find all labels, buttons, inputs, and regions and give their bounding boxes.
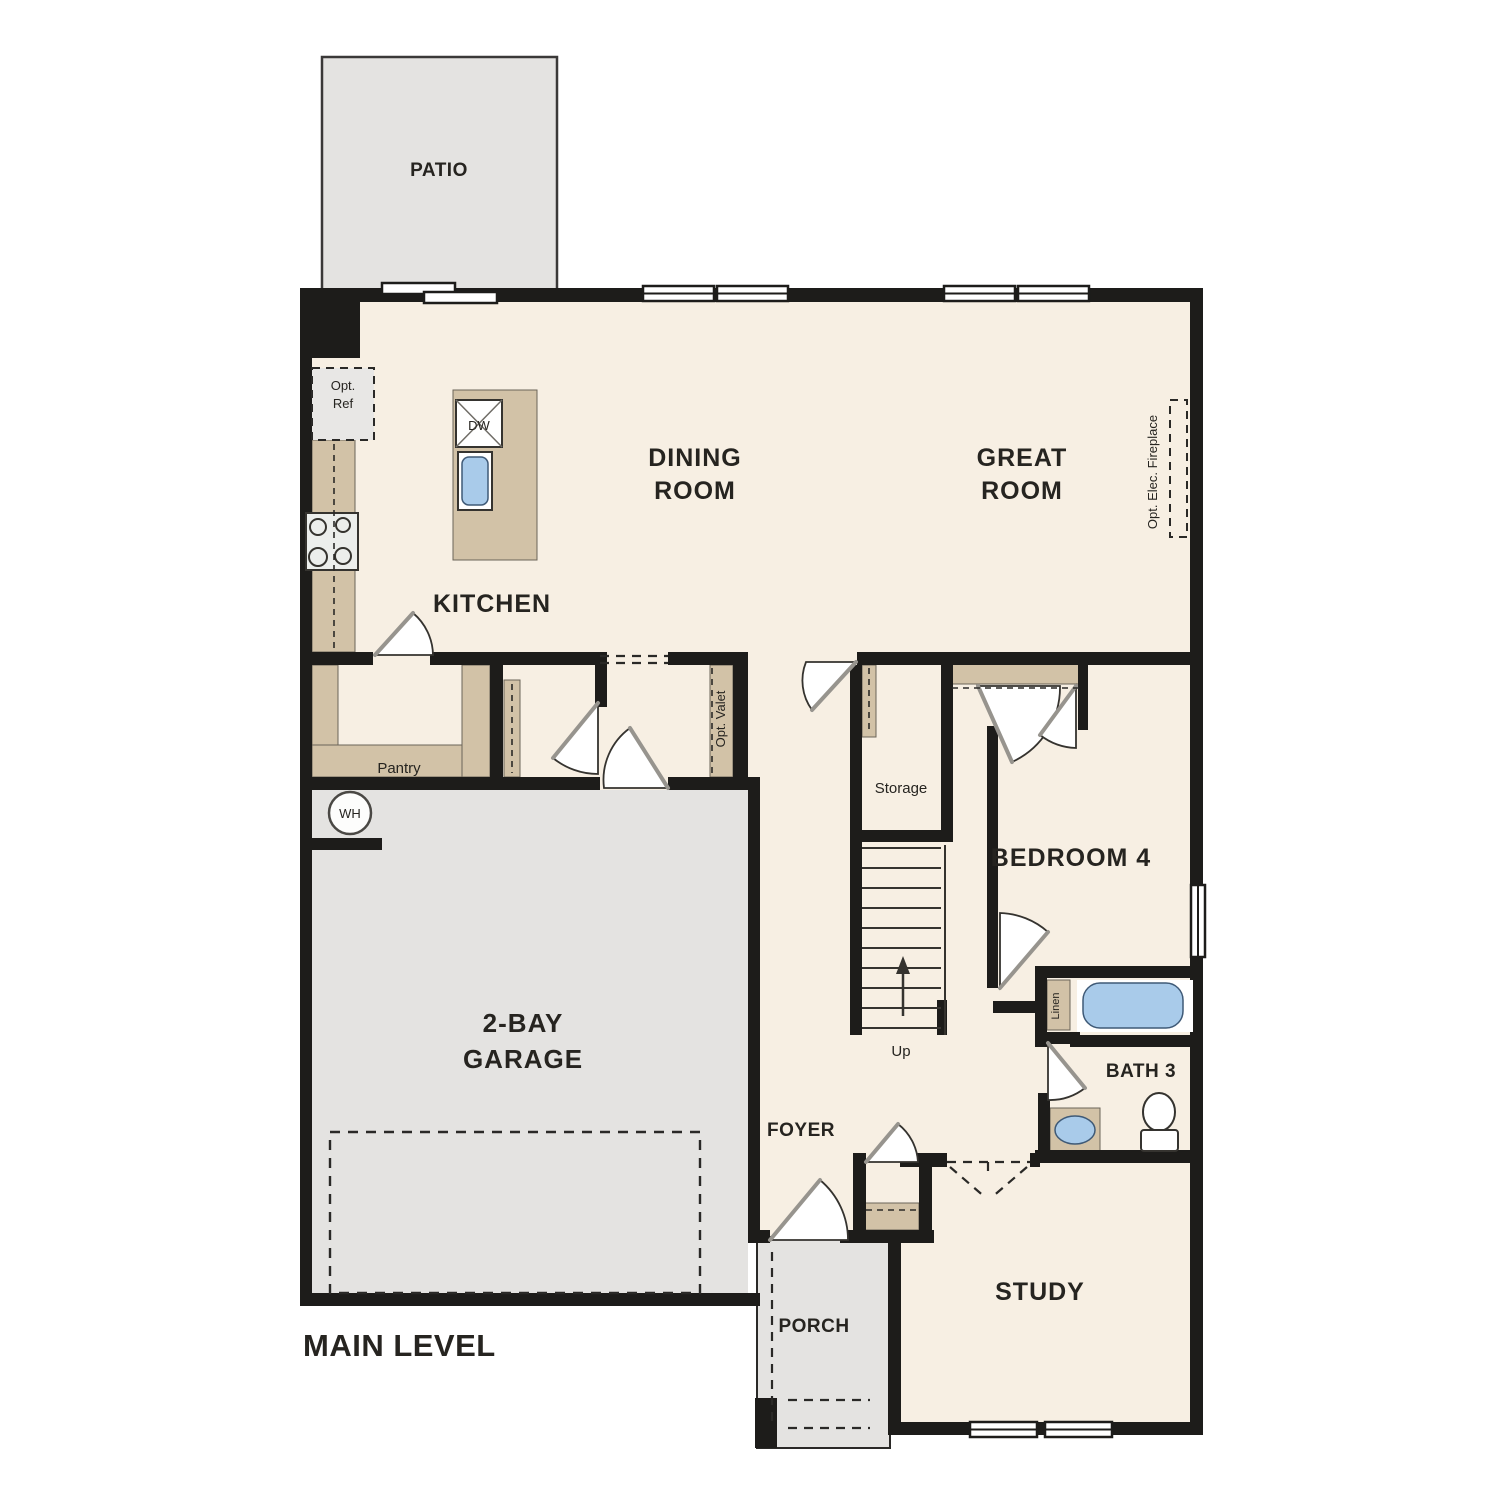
kitchen-label: KITCHEN bbox=[433, 590, 551, 618]
study-label: STUDY bbox=[995, 1278, 1085, 1306]
bath3-label: BATH 3 bbox=[1106, 1061, 1176, 1082]
toilet-tank bbox=[1141, 1130, 1178, 1151]
foyer-label: FOYER bbox=[767, 1120, 835, 1141]
floor-plan-page: PATIO DINING ROOM GREAT ROOM KITCHEN BED… bbox=[0, 0, 1500, 1500]
floor-plan-canvas: PATIO DINING ROOM GREAT ROOM KITCHEN BED… bbox=[0, 0, 1500, 1500]
plan-title: MAIN LEVEL bbox=[303, 1328, 496, 1363]
dining-room-label-2: ROOM bbox=[654, 477, 736, 505]
bathtub bbox=[1083, 983, 1183, 1028]
opt-fireplace-label: Opt. Elec. Fireplace bbox=[1145, 415, 1160, 529]
entry-closet-shelf bbox=[864, 1203, 919, 1230]
bedroom4-label: BEDROOM 4 bbox=[991, 844, 1151, 872]
great-room-label-2: ROOM bbox=[981, 477, 1063, 505]
dining-room-label-1: DINING bbox=[648, 444, 742, 472]
linen-label: Linen bbox=[1050, 993, 1062, 1020]
storage-label: Storage bbox=[875, 780, 928, 797]
opt-ref-label-2: Ref bbox=[333, 396, 354, 411]
patio-label: PATIO bbox=[410, 160, 468, 181]
great-room-label-1: GREAT bbox=[977, 444, 1068, 472]
toilet-bowl bbox=[1143, 1093, 1175, 1131]
pantry-shelf-right bbox=[462, 665, 490, 777]
up-label: Up bbox=[891, 1043, 910, 1060]
patio-slider-panel-2 bbox=[424, 292, 497, 303]
opt-valet-label: Opt. Valet bbox=[713, 690, 728, 747]
pantry-label: Pantry bbox=[377, 760, 421, 777]
bedroom4-closet-shelf bbox=[950, 662, 1082, 684]
garage-label-2: GARAGE bbox=[463, 1044, 583, 1074]
water-heater-label: WH bbox=[339, 806, 361, 821]
island-sink bbox=[462, 457, 488, 505]
dishwasher-label: DW bbox=[468, 418, 490, 433]
garage-label-1: 2-BAY bbox=[483, 1008, 564, 1038]
opt-ref-label-1: Opt. bbox=[331, 378, 356, 393]
porch-label: PORCH bbox=[778, 1316, 849, 1337]
bath3-sink bbox=[1055, 1116, 1095, 1144]
garage-area bbox=[312, 790, 748, 1293]
